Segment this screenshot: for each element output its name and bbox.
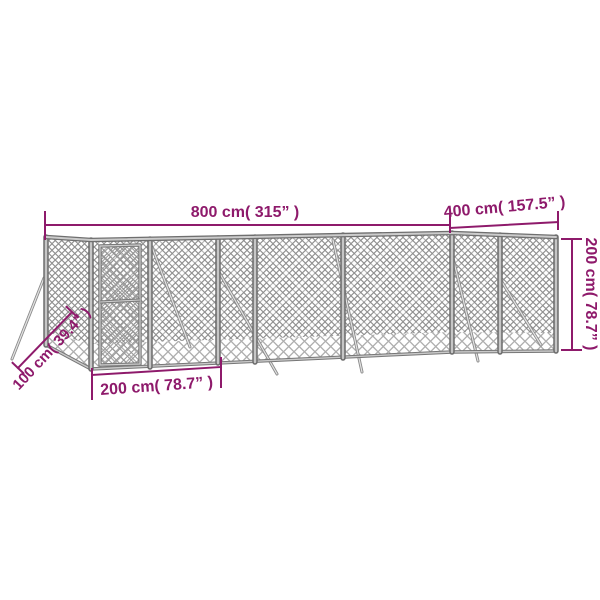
- front-wall-moire-overlay: [91, 233, 452, 344]
- dimension-door-width-label: 200 cm( 78.7” ): [100, 374, 214, 399]
- door-mesh: [100, 245, 140, 365]
- product-dimension-image: 800 cm( 315” ) 400 cm( 157.5” ) 200 cm( …: [0, 0, 600, 600]
- dimension-height-line: [562, 239, 581, 350]
- door-mid-rail: [100, 300, 140, 302]
- dimension-width-label: 800 cm( 315” ): [191, 204, 300, 221]
- kennel-dimension-diagram: 800 cm( 315” ) 400 cm( 157.5” ) 200 cm( …: [0, 0, 600, 600]
- dimension-height-label: 200 cm( 78.7” ): [582, 238, 599, 351]
- dimension-depth-label: 400 cm( 157.5” ): [443, 194, 566, 222]
